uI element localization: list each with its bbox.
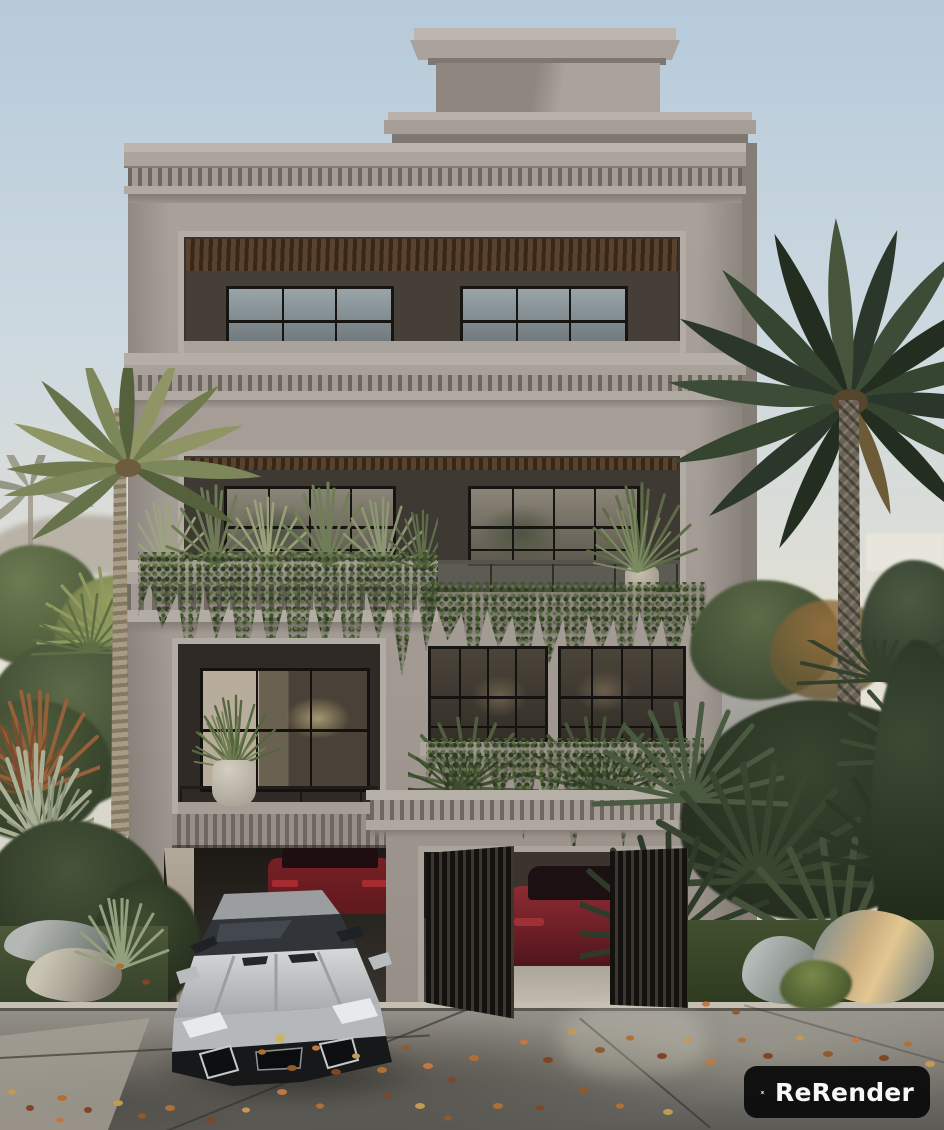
penthouse-roof: [414, 28, 676, 42]
terrace-pot: [212, 760, 256, 806]
penthouse-roof-fascia: [410, 40, 680, 60]
rerender-logo-icon: [760, 1079, 765, 1106]
cornice-main-shadow: [128, 194, 742, 203]
tier2-cornice: [388, 112, 752, 120]
red-coupe-window: [282, 848, 378, 868]
watermark-label: ReRender: [775, 1078, 914, 1107]
palm-left-canopy: [0, 368, 300, 608]
loggia-wood-ceiling: [186, 239, 678, 271]
cornice-main: [124, 143, 746, 152]
loggia-parapet: [184, 341, 680, 353]
loggia-window-left: [226, 286, 394, 348]
palm-right-canopy: [620, 210, 944, 630]
cornice-main-ledge: [124, 186, 746, 194]
architectural-render: ReRender: [0, 0, 944, 1130]
terrace-ledge: [178, 802, 380, 814]
penthouse: [436, 63, 660, 115]
loggia-window-right: [460, 286, 628, 348]
tier2-soffit: [392, 134, 748, 143]
palm-right-fronds: [667, 218, 944, 550]
watermark-badge: ReRender: [744, 1066, 930, 1118]
dentil-band-main: [128, 168, 742, 186]
palm-left-fronds: [2, 368, 262, 542]
tier2-fascia: [384, 120, 756, 134]
slat-band-left: [172, 814, 386, 848]
cornice-main-band: [124, 152, 746, 168]
